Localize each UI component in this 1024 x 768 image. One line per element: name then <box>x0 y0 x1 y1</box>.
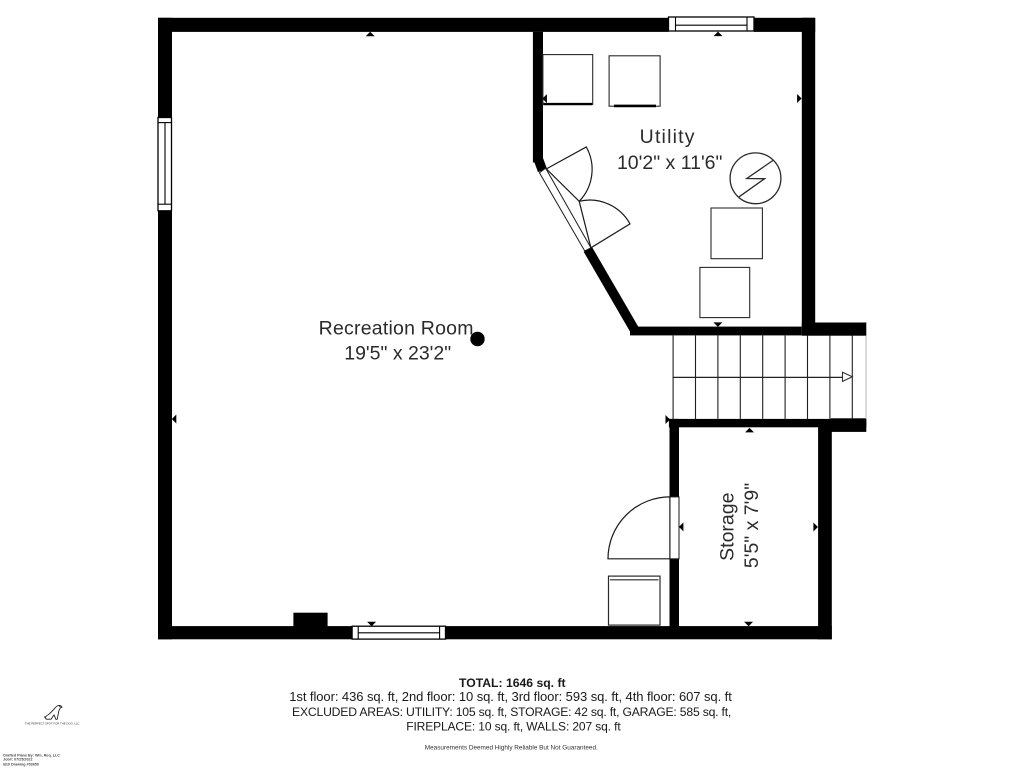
svg-text:Recreation Room: Recreation Room <box>319 318 474 340</box>
svg-text:TOTAL: 1646 sq. ft: TOTAL: 1646 sq. ft <box>459 676 566 690</box>
svg-text:THE PERFECT SPOT FOR THE DOG,: THE PERFECT SPOT FOR THE DOG, LLC <box>25 721 80 725</box>
svg-text:Storage: Storage <box>717 493 739 561</box>
svg-text:Utility: Utility <box>640 126 696 148</box>
svg-text:10'2" x 11'6": 10'2" x 11'6" <box>617 152 723 174</box>
svg-text:EXCLUDED AREAS: UTILITY: 105 s: EXCLUDED AREAS: UTILITY: 105 sq. ft, STO… <box>292 705 731 719</box>
svg-text:B10 Drawing #03650: B10 Drawing #03650 <box>3 763 39 767</box>
svg-text:19'5" x 23'2": 19'5" x 23'2" <box>344 343 451 365</box>
svg-text:1st floor: 436 sq. ft, 2nd flo: 1st floor: 436 sq. ft, 2nd floor: 10 sq.… <box>289 689 732 704</box>
svg-text:Measurements Deemed Highly Rel: Measurements Deemed Highly Reliable But … <box>425 744 598 751</box>
svg-text:5'5" x 7'9": 5'5" x 7'9" <box>741 483 763 568</box>
svg-text:FIREPLACE: 10 sq. ft, WALLS: 2: FIREPLACE: 10 sq. ft, WALLS: 207 sq. ft <box>406 720 621 734</box>
svg-text:Job#: 07/25/2022: Job#: 07/25/2022 <box>3 757 32 761</box>
